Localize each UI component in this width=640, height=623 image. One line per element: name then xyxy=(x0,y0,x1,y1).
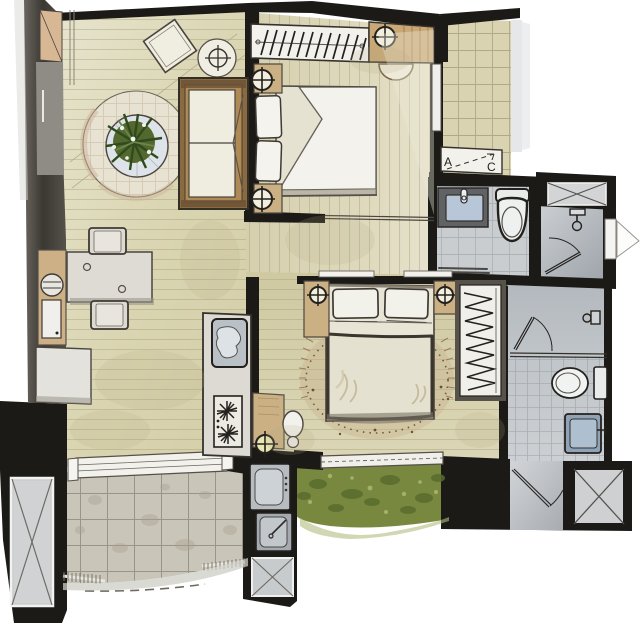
svg-text:A: A xyxy=(444,155,452,169)
svg-text:C: C xyxy=(487,160,496,174)
